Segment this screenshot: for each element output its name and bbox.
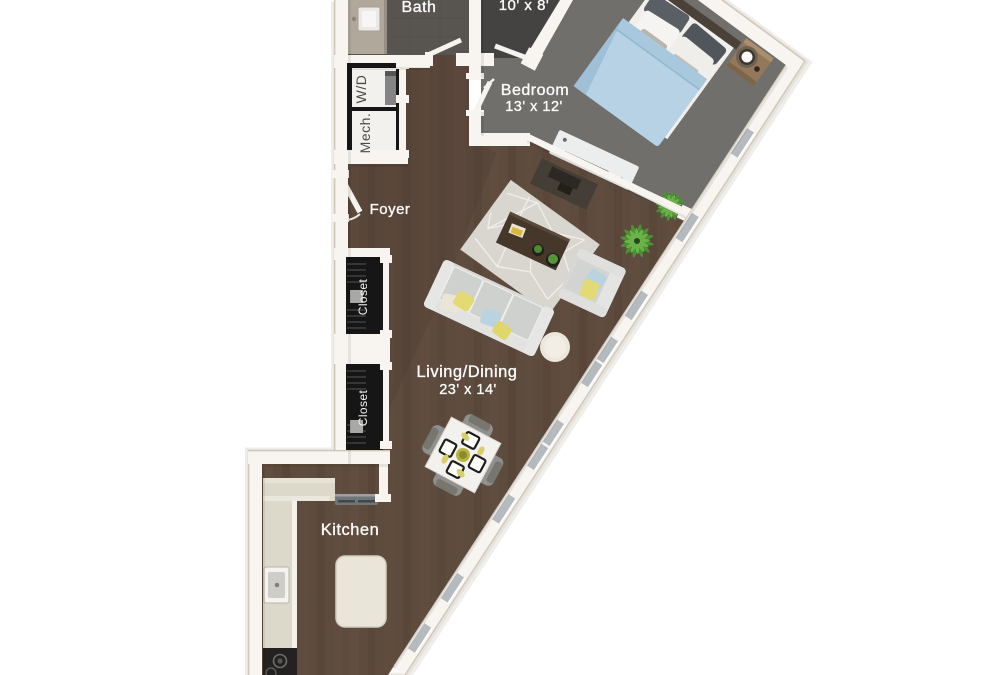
svg-text:13' x 12': 13' x 12' — [505, 99, 563, 115]
svg-text:Bath: Bath — [402, 0, 437, 16]
svg-text:Foyer: Foyer — [370, 201, 411, 218]
svg-text:W/D: W/D — [353, 75, 369, 104]
svg-text:Kitchen: Kitchen — [321, 521, 380, 539]
svg-text:Closet: Closet — [356, 390, 370, 427]
svg-text:Bedroom: Bedroom — [501, 82, 569, 99]
svg-text:10' x 8': 10' x 8' — [499, 0, 550, 14]
svg-text:Mech.: Mech. — [357, 113, 373, 154]
svg-text:Closet: Closet — [356, 279, 370, 316]
svg-text:23' x 14': 23' x 14' — [439, 382, 497, 398]
svg-text:Living/Dining: Living/Dining — [417, 363, 518, 381]
